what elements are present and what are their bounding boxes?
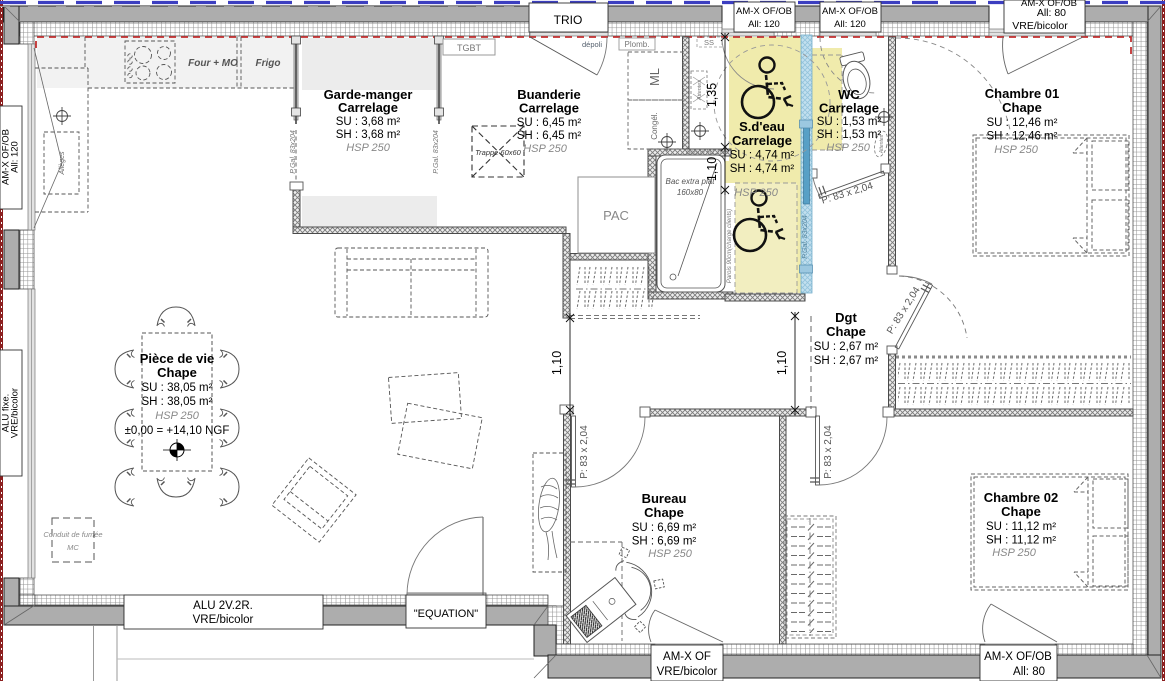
svg-text:All: 120: All: 120 bbox=[834, 19, 866, 30]
svg-text:Chape: Chape bbox=[1002, 100, 1042, 115]
svg-text:TGBT: TGBT bbox=[457, 43, 482, 53]
svg-text:Plomb.: Plomb. bbox=[625, 40, 650, 49]
svg-text:S.d'eau: S.d'eau bbox=[739, 119, 785, 134]
svg-text:P.Gal. 83x204: P.Gal. 83x204 bbox=[802, 215, 809, 259]
svg-text:Allèges: Allèges bbox=[59, 151, 66, 175]
svg-text:SU : 2,67 m²: SU : 2,67 m² bbox=[814, 341, 879, 353]
svg-text:SH : 6,69 m²: SH : 6,69 m² bbox=[632, 536, 697, 548]
svg-text:TRIO: TRIO bbox=[554, 13, 583, 27]
svg-text:SU : 1,53 m²: SU : 1,53 m² bbox=[817, 116, 882, 128]
svg-text:All: 80: All: 80 bbox=[1037, 7, 1066, 19]
svg-text:Bureau: Bureau bbox=[642, 491, 687, 506]
svg-text:HSP 250: HSP 250 bbox=[992, 547, 1037, 559]
svg-text:1,10: 1,10 bbox=[550, 351, 564, 375]
svg-text:All: 120: All: 120 bbox=[10, 141, 21, 173]
svg-text:SU : 6,69 m²: SU : 6,69 m² bbox=[632, 522, 697, 534]
svg-text:SH : 38,05 m²: SH : 38,05 m² bbox=[142, 396, 213, 408]
svg-text:SU : 12,46 m²: SU : 12,46 m² bbox=[987, 117, 1058, 129]
svg-text:All: 120: All: 120 bbox=[748, 19, 780, 30]
svg-text:HSP 250: HSP 250 bbox=[648, 548, 693, 560]
svg-text:AM-X OF/OB: AM-X OF/OB bbox=[984, 651, 1052, 663]
svg-text:Chape: Chape bbox=[826, 324, 866, 339]
svg-text:SH : 11,12 m²: SH : 11,12 m² bbox=[986, 535, 1056, 547]
svg-text:Trappe 60x60: Trappe 60x60 bbox=[475, 148, 522, 157]
svg-text:PAC: PAC bbox=[603, 208, 629, 223]
svg-text:Pièce de vie: Pièce de vie bbox=[140, 351, 214, 366]
svg-text:AM-X OF: AM-X OF bbox=[663, 651, 711, 663]
svg-text:SU : 11,12 m²: SU : 11,12 m² bbox=[986, 521, 1056, 533]
svg-text:VRE/bicolor: VRE/bicolor bbox=[1012, 20, 1068, 32]
svg-text:SH : 4,74 m²: SH : 4,74 m² bbox=[730, 163, 795, 175]
svg-text:SH : 3,68 m²: SH : 3,68 m² bbox=[336, 129, 401, 141]
svg-text:MC: MC bbox=[67, 543, 79, 552]
svg-text:VRE/bicolor: VRE/bicolor bbox=[657, 666, 718, 678]
svg-text:1,10: 1,10 bbox=[705, 157, 719, 181]
svg-text:Carrelage: Carrelage bbox=[732, 133, 792, 148]
svg-text:Congél.: Congél. bbox=[650, 112, 659, 140]
svg-text:P.Gal. 83x204: P.Gal. 83x204 bbox=[433, 130, 440, 174]
svg-text:SS: SS bbox=[704, 38, 714, 47]
svg-text:SH : 12,46 m²: SH : 12,46 m² bbox=[987, 131, 1058, 143]
svg-text:Attentes: Attentes bbox=[697, 80, 703, 101]
svg-text:Carrelage: Carrelage bbox=[819, 101, 879, 116]
svg-text:dépoli: dépoli bbox=[582, 40, 602, 49]
svg-text:HSP 250: HSP 250 bbox=[734, 187, 779, 199]
svg-text:Conduit de fumée: Conduit de fumée bbox=[43, 530, 102, 539]
svg-text:All: 80: All: 80 bbox=[1013, 666, 1045, 678]
svg-text:"EQUATION": "EQUATION" bbox=[414, 608, 479, 620]
svg-text:Chape: Chape bbox=[157, 365, 197, 380]
svg-text:VRE/bicolor: VRE/bicolor bbox=[10, 388, 21, 438]
svg-text:±0,00 = +14,10 NGF: ±0,00 = +14,10 NGF bbox=[125, 425, 230, 437]
svg-text:Chape: Chape bbox=[1001, 504, 1041, 519]
svg-text:HSP 250: HSP 250 bbox=[826, 142, 871, 154]
svg-text:P: 83 x 2,04: P: 83 x 2,04 bbox=[579, 425, 590, 479]
svg-text:Parois 90cm(charge clients): Parois 90cm(charge clients) bbox=[727, 209, 733, 283]
svg-text:Carrelage: Carrelage bbox=[519, 101, 579, 116]
svg-text:1,35: 1,35 bbox=[705, 83, 719, 107]
svg-text:VRE/bicolor: VRE/bicolor bbox=[193, 614, 254, 626]
svg-text:Chambre 01: Chambre 01 bbox=[985, 86, 1059, 101]
svg-text:SU : 3,68 m²: SU : 3,68 m² bbox=[336, 116, 401, 128]
svg-text:SH : 2,67 m²: SH : 2,67 m² bbox=[814, 355, 879, 367]
svg-text:HSP 250: HSP 250 bbox=[346, 142, 391, 154]
svg-text:HSP 250: HSP 250 bbox=[155, 410, 200, 422]
svg-text:P: 83 x 2,04: P: 83 x 2,04 bbox=[823, 425, 834, 479]
svg-text:Carrelage: Carrelage bbox=[338, 100, 398, 115]
svg-text:SH : 1,53 m²: SH : 1,53 m² bbox=[817, 129, 882, 141]
svg-text:Frigo: Frigo bbox=[256, 58, 281, 69]
svg-text:SU : 4,74 m²: SU : 4,74 m² bbox=[730, 150, 795, 162]
svg-text:160x80: 160x80 bbox=[677, 188, 704, 197]
svg-text:1,10: 1,10 bbox=[775, 351, 789, 375]
svg-text:HSP 250: HSP 250 bbox=[994, 144, 1039, 156]
svg-text:Four + MO: Four + MO bbox=[188, 58, 238, 69]
svg-text:AM-X OF/OB: AM-X OF/OB bbox=[822, 6, 878, 17]
svg-text:ALU 2V.2R.: ALU 2V.2R. bbox=[193, 600, 253, 612]
svg-text:ML: ML bbox=[647, 68, 662, 86]
svg-text:Dgt: Dgt bbox=[835, 310, 857, 325]
svg-text:SU : 38,05 m²: SU : 38,05 m² bbox=[142, 382, 213, 394]
svg-text:AM-X OF/OB: AM-X OF/OB bbox=[736, 6, 792, 17]
svg-text:HSP 250: HSP 250 bbox=[523, 143, 568, 155]
svg-text:Chape: Chape bbox=[644, 505, 684, 520]
svg-text:SU : 6,45 m²: SU : 6,45 m² bbox=[517, 117, 582, 129]
svg-text:Chambre 02: Chambre 02 bbox=[984, 490, 1058, 505]
svg-text:SH : 6,45 m²: SH : 6,45 m² bbox=[517, 130, 582, 142]
